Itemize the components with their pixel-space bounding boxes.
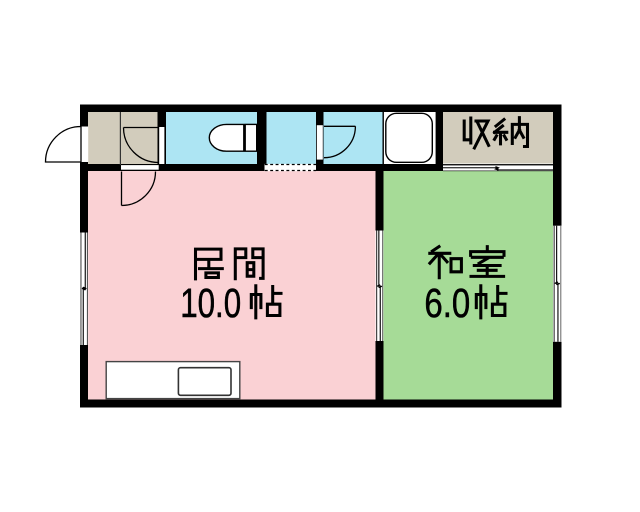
- svg-text:6.0: 6.0: [424, 280, 470, 326]
- svg-text:10.0: 10.0: [180, 280, 241, 326]
